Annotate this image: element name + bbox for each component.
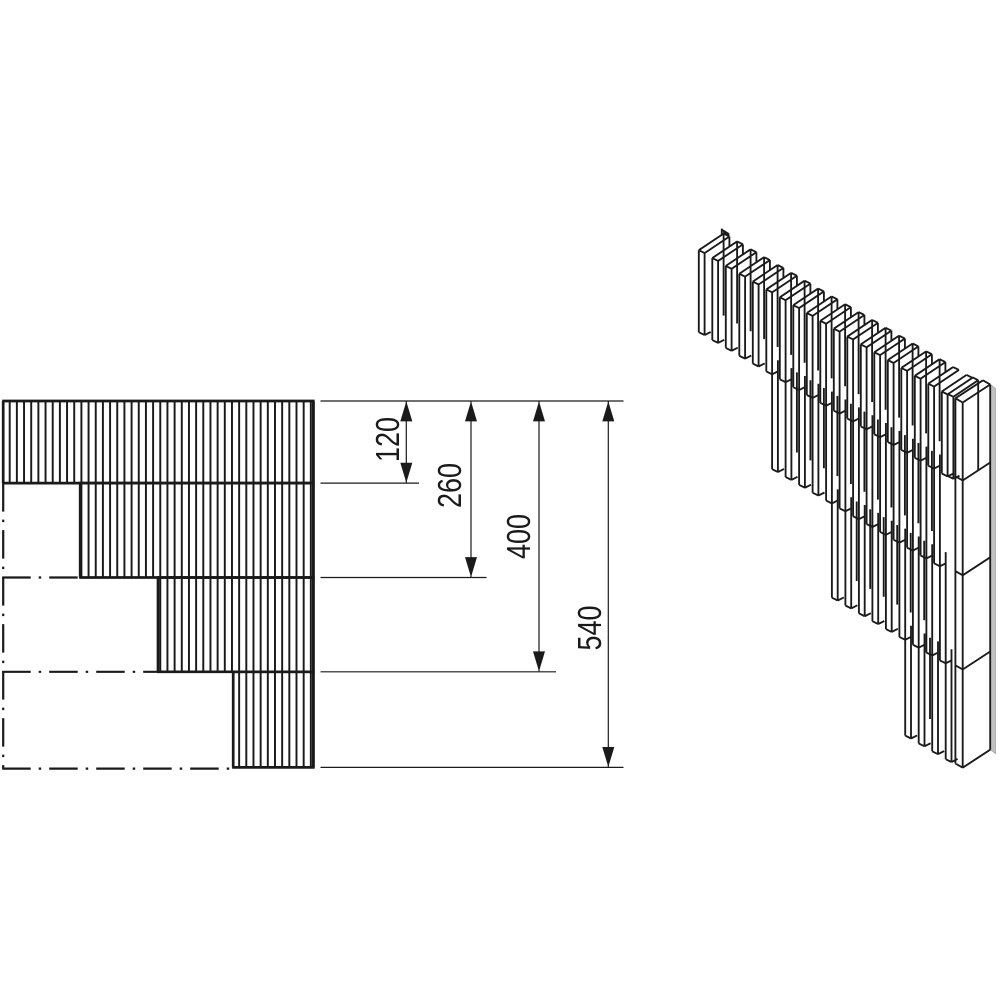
svg-text:120: 120 [369,417,406,462]
svg-text:260: 260 [431,463,468,508]
svg-text:540: 540 [571,606,608,651]
svg-text:400: 400 [500,514,537,559]
